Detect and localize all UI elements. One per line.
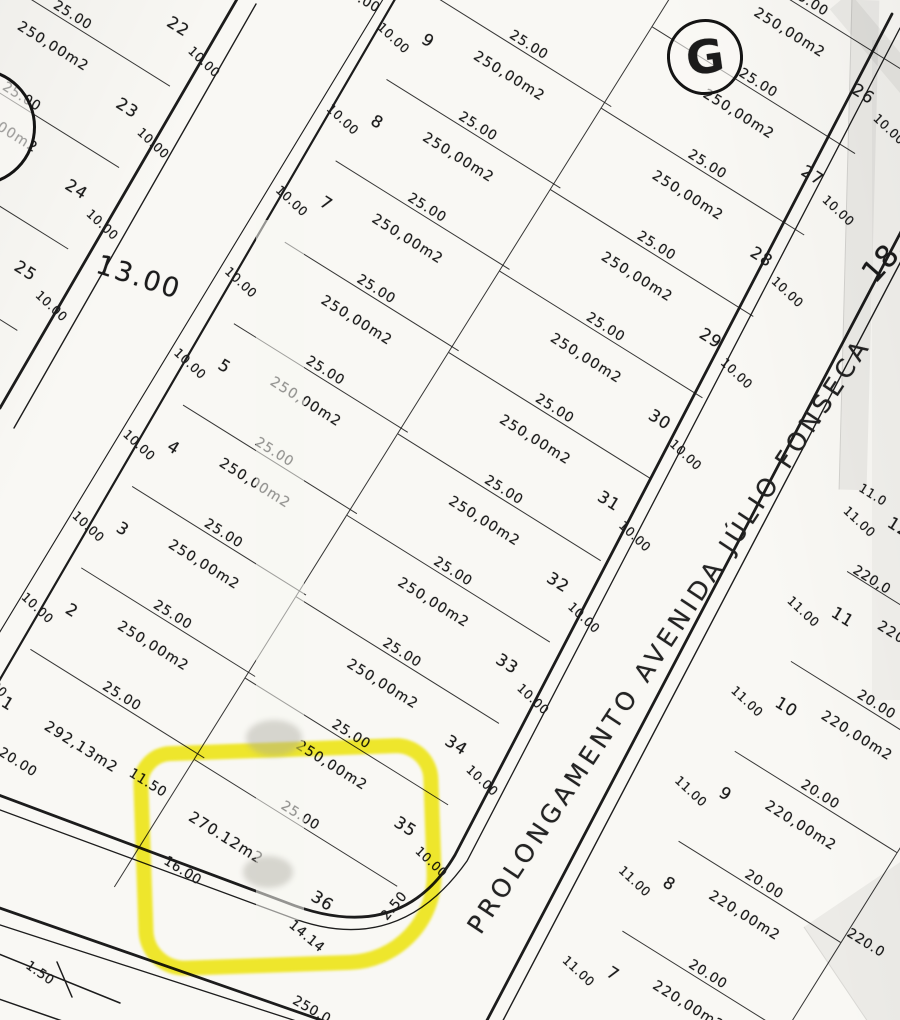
highlight-ring <box>132 737 445 978</box>
neighbour-block-tick <box>57 962 72 997</box>
smudge <box>243 856 293 888</box>
neighbour-block-line2 <box>0 998 94 1020</box>
smudge <box>246 720 302 756</box>
block-marker-letter: G <box>683 28 728 87</box>
cross-street-block-twin <box>0 0 385 668</box>
neighbour-block-line <box>0 952 120 1003</box>
cadastral-map-scan: G PROLONGAMENTO AVENIDA JÚLIO FONSECA 13… <box>0 0 900 1020</box>
cross-street-outer-twin <box>14 4 256 428</box>
cross-street-outer-line <box>0 0 240 408</box>
avenue-right-twin <box>498 78 900 1020</box>
avenue-right-line <box>484 66 900 1020</box>
